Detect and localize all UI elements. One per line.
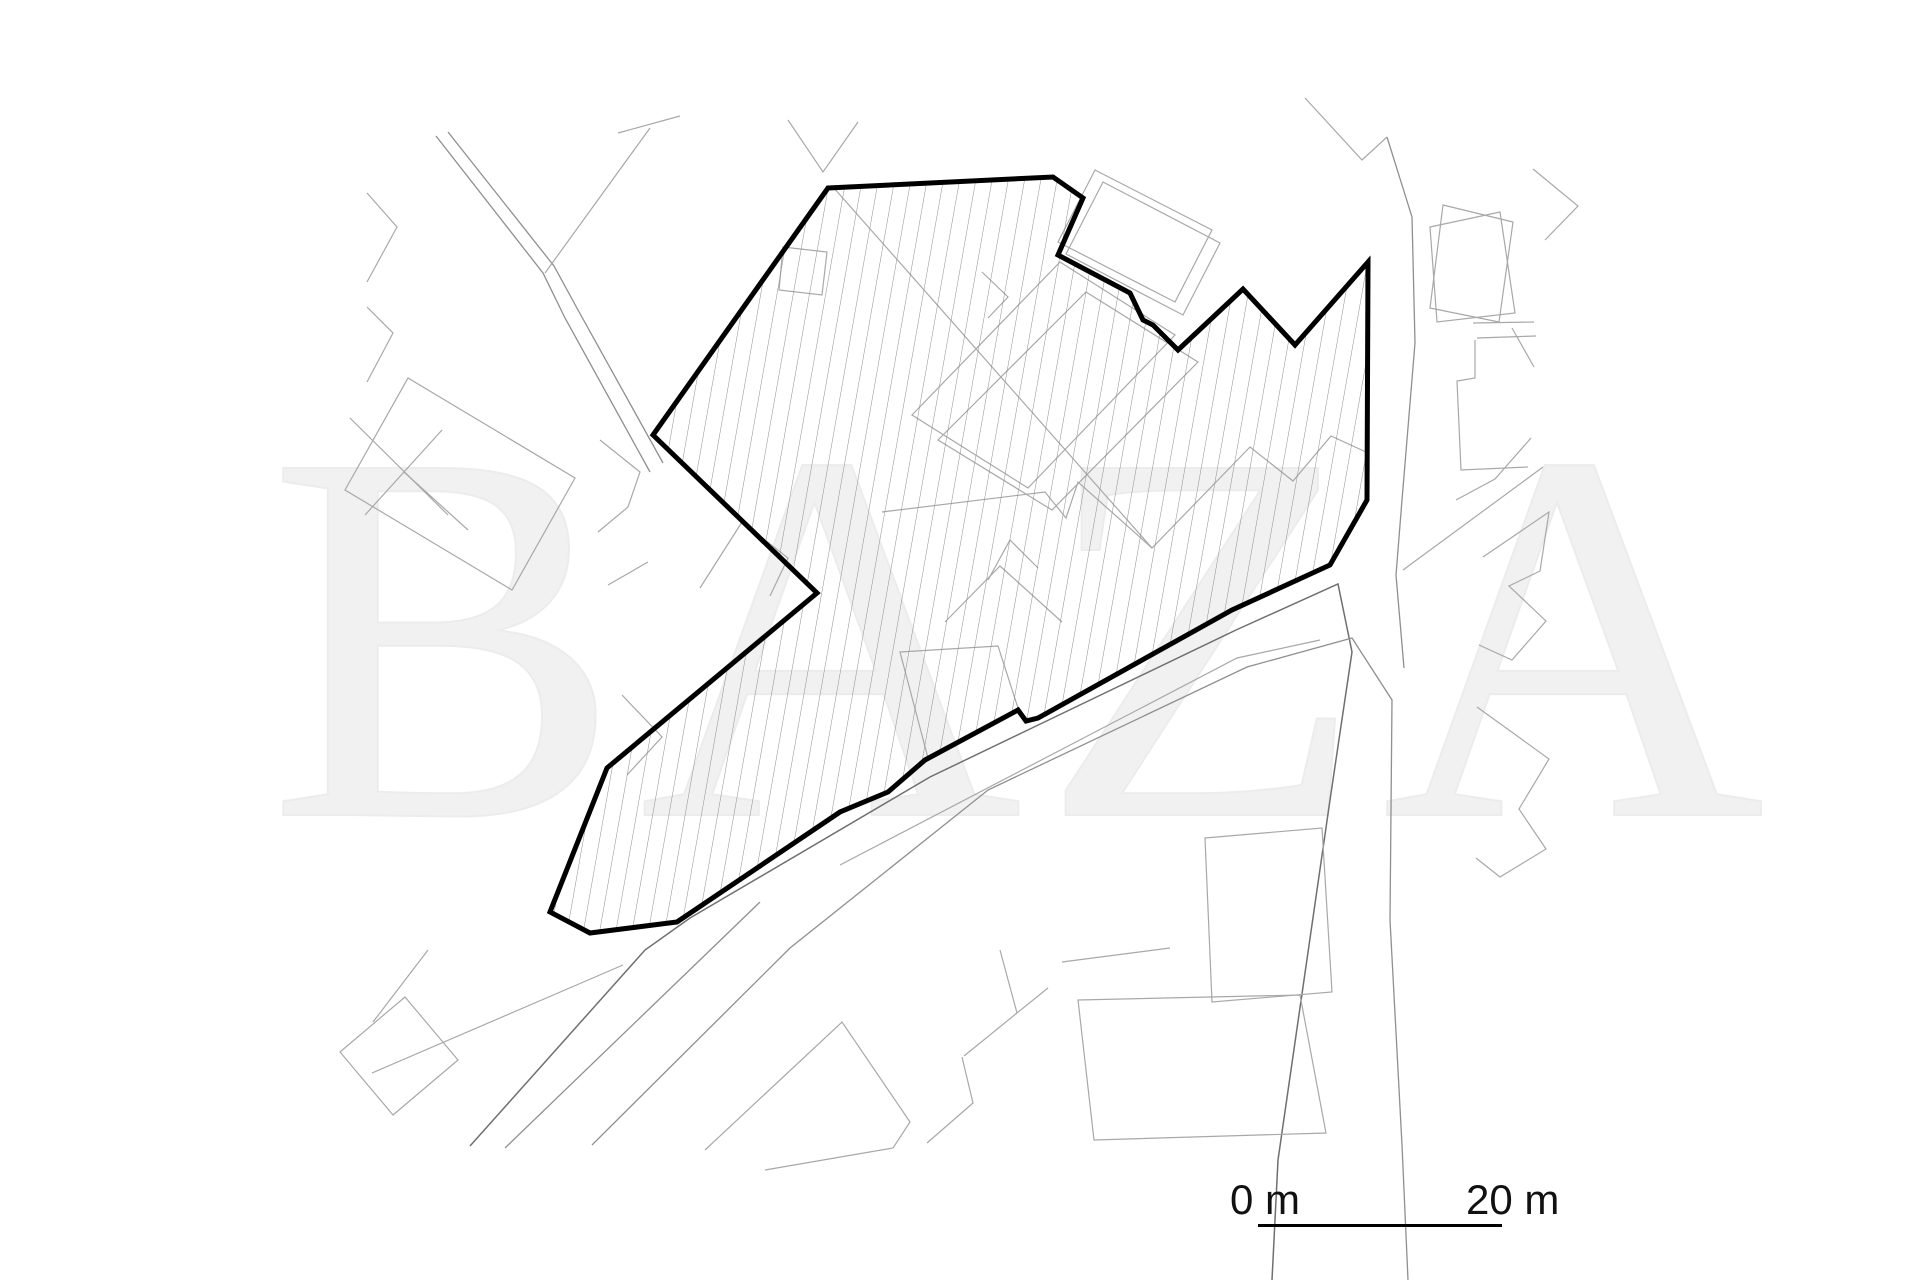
parcel-line — [545, 128, 650, 273]
road-edge — [1387, 137, 1415, 668]
parcel-line — [1457, 340, 1528, 470]
parcel-line — [618, 116, 680, 133]
site-plan: BAZA — [0, 0, 1920, 1280]
parcel-line — [367, 307, 393, 382]
parcel-line — [1476, 707, 1549, 877]
parcel-line — [373, 950, 428, 1022]
parcel-line — [1403, 467, 1543, 570]
scale-end-label: 20 m — [1466, 1176, 1559, 1224]
parcel-line — [964, 1013, 1017, 1056]
parcel-line — [367, 193, 397, 282]
parcel-line — [350, 418, 448, 515]
parcel-line — [1477, 336, 1536, 338]
road-edge — [505, 902, 760, 1148]
site-plan-drawing — [0, 0, 1920, 1280]
building-outline — [705, 1022, 910, 1170]
parcel-line — [1512, 328, 1534, 367]
site-boundary-polygon — [550, 177, 1368, 933]
road-edge — [436, 136, 650, 472]
building-outline — [1430, 205, 1513, 322]
site-boundary — [550, 177, 1368, 933]
parcel-line — [608, 562, 648, 585]
parcel-line — [372, 965, 623, 1073]
building-outline — [345, 378, 575, 590]
building-outline — [340, 997, 458, 1115]
building-outline — [1430, 212, 1515, 322]
building-outline — [1078, 995, 1326, 1140]
parcel-line — [1533, 169, 1578, 240]
parcel-line — [1000, 950, 1048, 1013]
parcel-line — [1305, 98, 1387, 160]
parcel-line — [598, 440, 640, 532]
parcel-line — [1473, 322, 1534, 323]
scale-start-label: 0 m — [1230, 1176, 1300, 1224]
parcel-line — [788, 120, 858, 172]
parcel-line — [365, 430, 442, 515]
parcel-line — [927, 1057, 973, 1143]
parcel-line — [1479, 512, 1549, 660]
scale-bar-line — [1258, 1224, 1502, 1227]
parcel-line — [404, 472, 468, 530]
parcel-line — [1062, 948, 1170, 962]
